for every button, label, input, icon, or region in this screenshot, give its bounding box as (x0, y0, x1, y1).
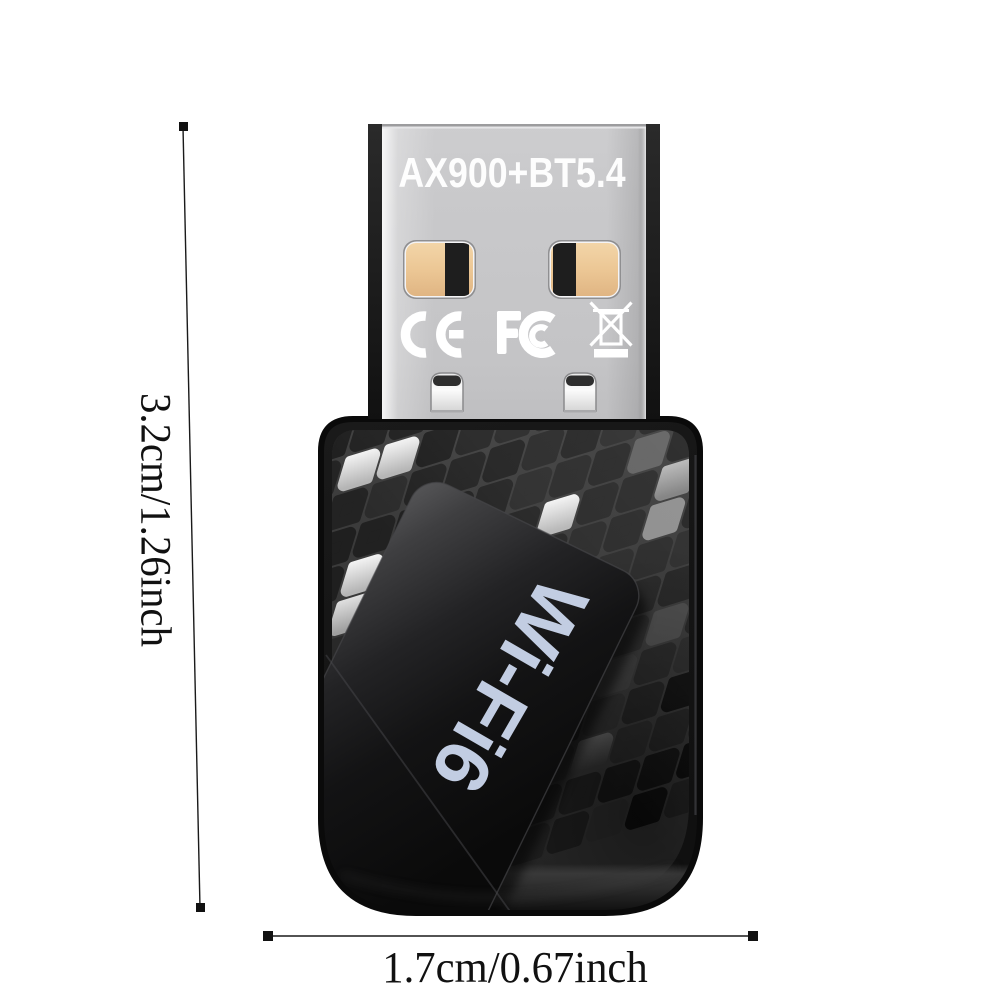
svg-text:3.2cm/1.26inch: 3.2cm/1.26inch (131, 393, 178, 647)
svg-text:AX900+BT5.4: AX900+BT5.4 (398, 150, 625, 196)
svg-text:1.7cm/0.67inch: 1.7cm/0.67inch (382, 943, 648, 992)
